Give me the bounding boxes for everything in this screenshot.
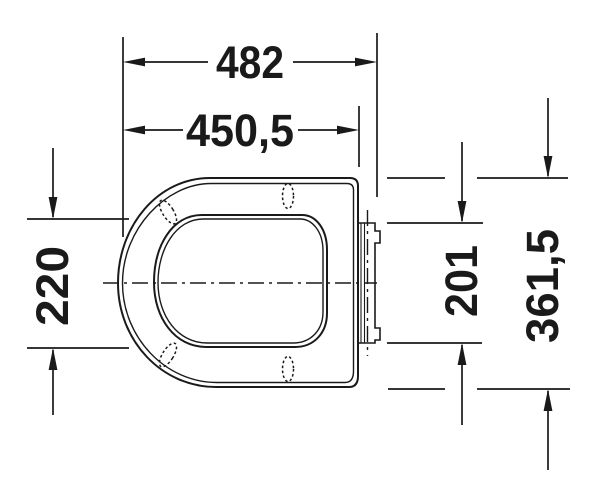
bumper-top-left <box>156 198 180 227</box>
dimension-lid-length: 450,5 <box>123 105 359 167</box>
dimension-hinge-plate-width: 201 <box>387 142 487 425</box>
bumper-bottom-center <box>283 357 294 382</box>
seat-body <box>103 178 380 387</box>
bumper-top-center <box>283 184 294 209</box>
arrowhead-bottom <box>458 343 467 365</box>
dim-label-482: 482 <box>216 37 284 88</box>
arrowhead-left <box>123 126 145 135</box>
arrowhead-top <box>49 197 58 219</box>
arrowhead-bottom <box>49 348 58 370</box>
arrowhead-left <box>123 58 145 67</box>
dim-label-220: 220 <box>27 246 78 326</box>
arrowhead-bottom <box>544 389 553 411</box>
dimension-opening-width: 220 <box>27 148 129 415</box>
bumper-bottom-left <box>156 341 180 370</box>
technical-drawing: 482 450,5 220 201 3 <box>0 0 600 500</box>
seat-inner-ring-outline <box>154 215 327 347</box>
dim-label-361-5: 361,5 <box>517 229 568 343</box>
dim-label-201: 201 <box>436 245 487 317</box>
seat-inner-ring-parallel <box>158 219 323 343</box>
arrowhead-top <box>458 201 467 223</box>
arrowhead-right <box>337 126 359 135</box>
dim-label-450-5: 450,5 <box>186 105 294 156</box>
arrowhead-top <box>544 156 553 178</box>
arrowhead-right <box>355 58 377 67</box>
